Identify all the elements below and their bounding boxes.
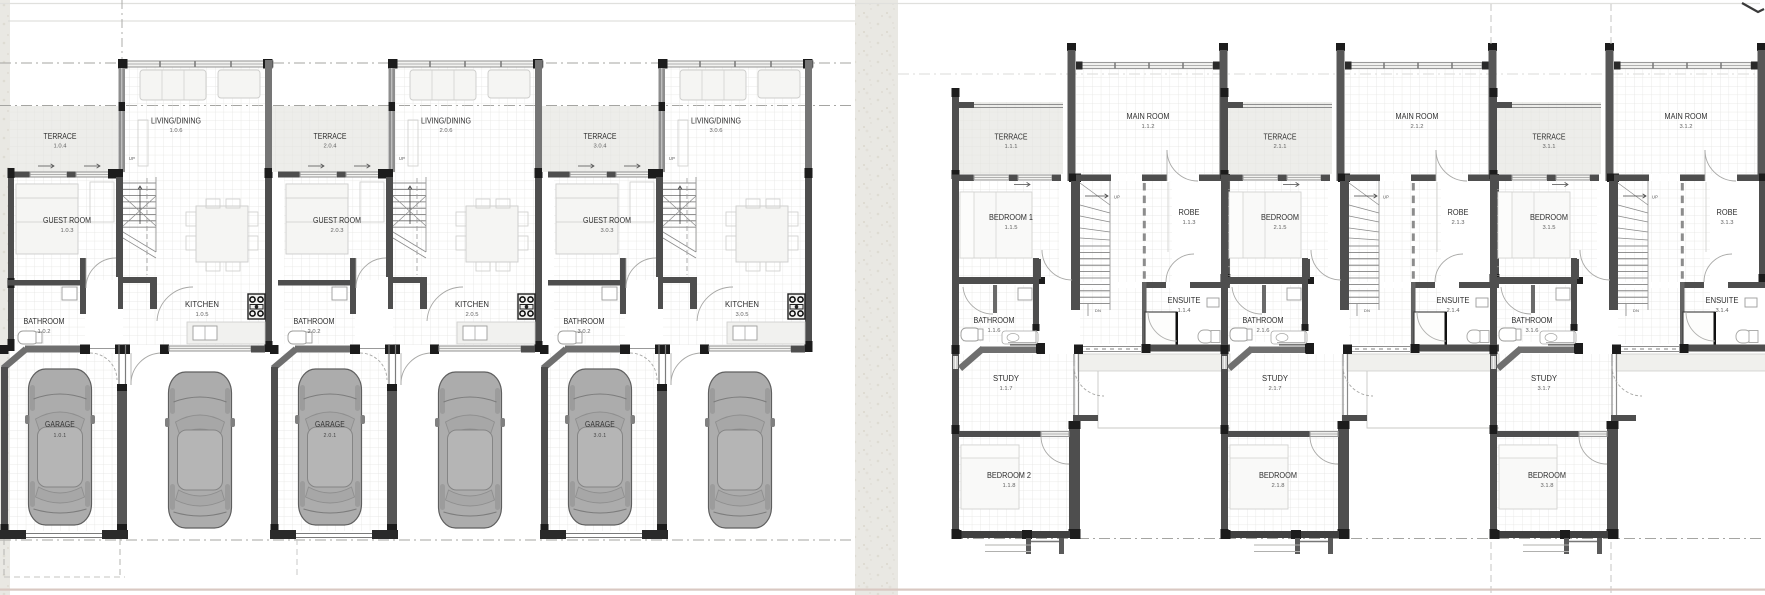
svg-text:BATHROOM: BATHROOM: [294, 317, 335, 326]
svg-text:BEDROOM: BEDROOM: [1259, 471, 1297, 480]
svg-text:TERRACE: TERRACE: [1264, 133, 1297, 142]
svg-text:LIVING/DINING: LIVING/DINING: [691, 117, 741, 126]
svg-text:1.1.4: 1.1.4: [1178, 308, 1191, 314]
svg-text:KITCHEN: KITCHEN: [185, 300, 219, 309]
svg-text:2.0.2: 2.0.2: [308, 329, 321, 335]
svg-text:GUEST ROOM: GUEST ROOM: [313, 216, 361, 225]
svg-text:1.0.4: 1.0.4: [54, 144, 67, 150]
svg-text:STUDY: STUDY: [993, 374, 1020, 383]
svg-text:ROBE: ROBE: [1448, 208, 1469, 217]
svg-text:MAIN ROOM: MAIN ROOM: [1396, 112, 1439, 121]
svg-text:BEDROOM 1: BEDROOM 1: [989, 213, 1033, 222]
svg-text:BEDROOM 2: BEDROOM 2: [987, 471, 1031, 480]
svg-text:TERRACE: TERRACE: [995, 133, 1028, 142]
svg-text:UP: UP: [1652, 195, 1658, 200]
svg-text:UP: UP: [1114, 195, 1120, 200]
svg-text:1.0.2: 1.0.2: [38, 329, 51, 335]
svg-text:3.1.6: 3.1.6: [1526, 328, 1539, 334]
svg-text:UP: UP: [669, 156, 675, 161]
svg-text:BATHROOM: BATHROOM: [1243, 316, 1284, 325]
svg-text:TERRACE: TERRACE: [1533, 133, 1566, 142]
svg-text:2.1.2: 2.1.2: [1411, 124, 1424, 130]
svg-text:2.1.4: 2.1.4: [1447, 308, 1460, 314]
svg-text:3.0.1: 3.0.1: [594, 433, 607, 439]
svg-text:TERRACE: TERRACE: [584, 132, 617, 141]
svg-text:ROBE: ROBE: [1717, 208, 1738, 217]
svg-text:2.1.5: 2.1.5: [1274, 225, 1287, 231]
svg-text:3.0.4: 3.0.4: [594, 144, 607, 150]
svg-text:BATHROOM: BATHROOM: [974, 316, 1015, 325]
svg-text:MAIN ROOM: MAIN ROOM: [1665, 112, 1708, 121]
svg-text:2.0.4: 2.0.4: [324, 144, 337, 150]
svg-text:1.1.7: 1.1.7: [1000, 386, 1013, 392]
svg-text:ENSUITE: ENSUITE: [1168, 296, 1201, 305]
svg-text:GUEST ROOM: GUEST ROOM: [583, 216, 631, 225]
svg-text:DN: DN: [1095, 308, 1101, 313]
svg-text:BATHROOM: BATHROOM: [24, 317, 65, 326]
svg-text:3.1.1: 3.1.1: [1543, 144, 1556, 150]
svg-text:BEDROOM: BEDROOM: [1261, 213, 1299, 222]
svg-text:LIVING/DINING: LIVING/DINING: [151, 117, 201, 126]
svg-text:TERRACE: TERRACE: [314, 132, 347, 141]
svg-text:3.0.2: 3.0.2: [578, 329, 591, 335]
svg-text:BEDROOM: BEDROOM: [1528, 471, 1566, 480]
svg-text:1.1.1: 1.1.1: [1005, 144, 1018, 150]
svg-text:2.1.8: 2.1.8: [1272, 483, 1285, 489]
svg-text:1.0.1: 1.0.1: [54, 433, 67, 439]
svg-text:DN: DN: [1633, 308, 1639, 313]
svg-text:TERRACE: TERRACE: [44, 132, 77, 141]
svg-text:LIVING/DINING: LIVING/DINING: [421, 117, 471, 126]
svg-text:GUEST ROOM: GUEST ROOM: [43, 216, 91, 225]
svg-text:3.1.4: 3.1.4: [1716, 308, 1729, 314]
svg-text:2.0.6: 2.0.6: [440, 128, 453, 134]
svg-text:2.1.1: 2.1.1: [1274, 144, 1287, 150]
svg-text:1.1.8: 1.1.8: [1003, 483, 1016, 489]
svg-text:ENSUITE: ENSUITE: [1706, 296, 1739, 305]
svg-text:1.1.2: 1.1.2: [1142, 124, 1155, 130]
svg-text:BATHROOM: BATHROOM: [564, 317, 605, 326]
svg-text:3.0.6: 3.0.6: [710, 128, 723, 134]
svg-text:3.1.7: 3.1.7: [1538, 386, 1551, 392]
svg-text:1.0.3: 1.0.3: [61, 228, 74, 234]
svg-text:STUDY: STUDY: [1262, 374, 1289, 383]
svg-text:2.1.3: 2.1.3: [1452, 220, 1465, 226]
svg-text:UP: UP: [1383, 195, 1389, 200]
svg-text:2.0.1: 2.0.1: [324, 433, 337, 439]
svg-text:1.1.5: 1.1.5: [1005, 225, 1018, 231]
svg-text:ROBE: ROBE: [1179, 208, 1200, 217]
svg-text:KITCHEN: KITCHEN: [725, 300, 759, 309]
svg-text:3.0.3: 3.0.3: [601, 228, 614, 234]
svg-text:UP: UP: [399, 156, 405, 161]
svg-text:GARAGE: GARAGE: [315, 420, 345, 429]
svg-text:3.1.3: 3.1.3: [1721, 220, 1734, 226]
svg-text:MAIN ROOM: MAIN ROOM: [1127, 112, 1170, 121]
svg-text:ENSUITE: ENSUITE: [1437, 296, 1470, 305]
svg-text:1.0.5: 1.0.5: [196, 312, 209, 318]
svg-text:BATHROOM: BATHROOM: [1512, 316, 1553, 325]
svg-text:3.0.5: 3.0.5: [736, 312, 749, 318]
svg-text:2.0.3: 2.0.3: [331, 228, 344, 234]
svg-text:1.1.3: 1.1.3: [1183, 220, 1196, 226]
svg-text:UP: UP: [129, 156, 135, 161]
svg-text:GARAGE: GARAGE: [45, 420, 75, 429]
svg-text:1.1.6: 1.1.6: [988, 328, 1001, 334]
svg-text:2.1.6: 2.1.6: [1257, 328, 1270, 334]
svg-text:KITCHEN: KITCHEN: [455, 300, 489, 309]
svg-text:3.1.8: 3.1.8: [1541, 483, 1554, 489]
svg-text:GARAGE: GARAGE: [585, 420, 615, 429]
svg-text:DN: DN: [1364, 308, 1370, 313]
svg-text:BEDROOM: BEDROOM: [1530, 213, 1568, 222]
svg-text:1.0.6: 1.0.6: [170, 128, 183, 134]
svg-text:3.1.5: 3.1.5: [1543, 225, 1556, 231]
svg-text:STUDY: STUDY: [1531, 374, 1558, 383]
svg-text:2.1.7: 2.1.7: [1269, 386, 1282, 392]
svg-text:3.1.2: 3.1.2: [1680, 124, 1693, 130]
svg-text:2.0.5: 2.0.5: [466, 312, 479, 318]
